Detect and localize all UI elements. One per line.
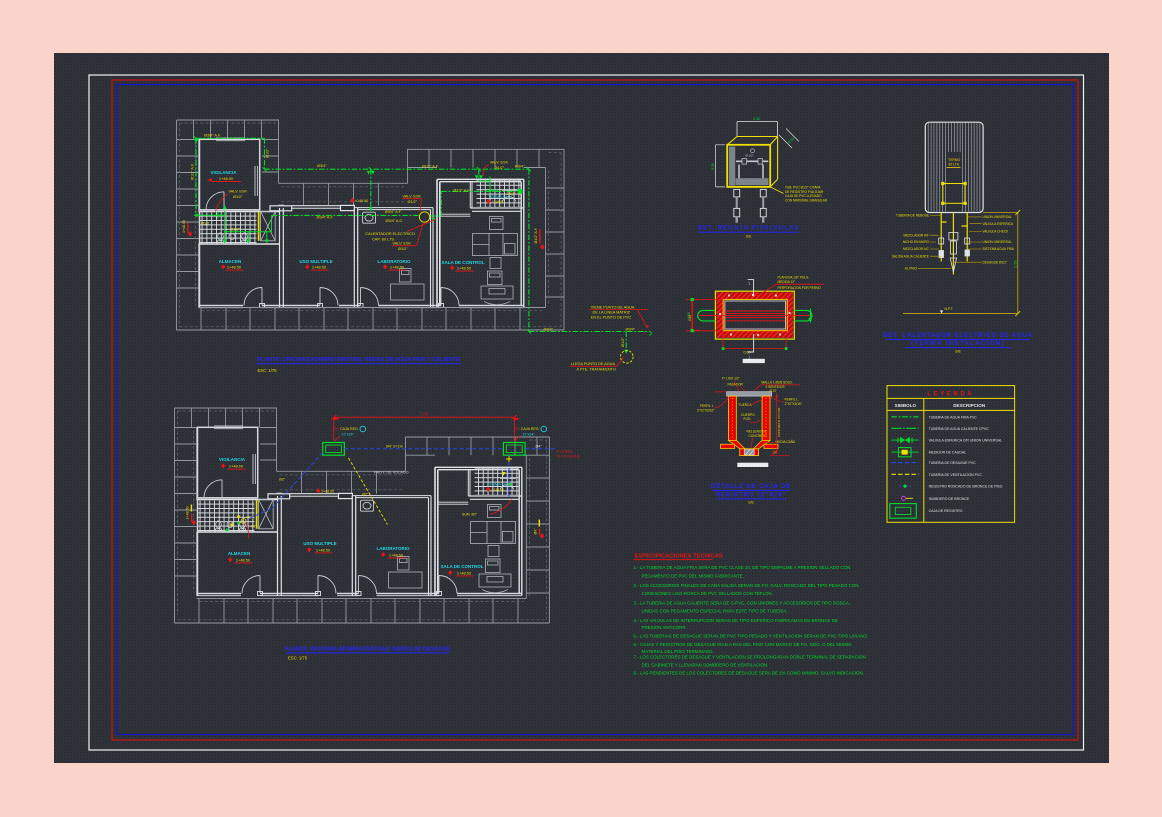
svg-text:VALV. ESF.: VALV. ESF.: [403, 195, 422, 199]
svg-text:1+48.50: 1+48.50: [186, 506, 190, 519]
svg-text:LEYENDA: LEYENDA: [927, 391, 974, 397]
svg-text:VIGILANCIA: VIGILANCIA: [210, 170, 237, 175]
svg-text:(TERMA INSTALACION): (TERMA INSTALACION): [911, 341, 1005, 347]
svg-text:MEDIDOR DE CAUDAL: MEDIDOR DE CAUDAL: [929, 451, 967, 455]
svg-text:DET. RECAJA P/VALVULAS: DET. RECAJA P/VALVULAS: [697, 226, 799, 232]
svg-text:Ø1/2" A.F.: Ø1/2" A.F.: [422, 165, 439, 169]
svg-text:PEGAMENTO DE PVC DEL MISMO FAB: PEGAMENTO DE PVC DEL MISMO FABRICANTE.: [642, 574, 744, 579]
svg-text:USO MULTIPLE: USO MULTIPLE: [303, 541, 336, 546]
svg-text:4.- LAS VALVULAS DE INTERRUPCI: 4.- LAS VALVULAS DE INTERRUPCION SERAN D…: [634, 618, 838, 623]
svg-text:Ø 1/2": Ø 1/2": [746, 153, 754, 157]
svg-text:Ø3/4": Ø3/4": [544, 328, 554, 332]
svg-text:PLANTA: OFICINAS ADMINISTRATIV: PLANTA: OFICINAS ADMINISTRATIVAS: REDES …: [285, 646, 451, 652]
svg-text:1+48.50: 1+48.50: [227, 265, 242, 270]
svg-text:Ø3/4" A.C.: Ø3/4" A.C.: [386, 219, 404, 223]
svg-text:Ø4": Ø4": [536, 444, 543, 448]
svg-text:DE DESAGUE: DE DESAGUE: [557, 455, 581, 459]
svg-text:PLANTA: OFICINAS ADMINISTRATIV: PLANTA: OFICINAS ADMINISTRATIVAS: REDES …: [257, 357, 460, 363]
svg-text:80 LTS.: 80 LTS.: [949, 163, 960, 167]
svg-text:MEDIDA 12": MEDIDA 12": [778, 280, 796, 284]
svg-text:VALV. ESF.: VALV. ESF.: [229, 190, 248, 194]
svg-text:VALVULA ESFERICA: VALVULA ESFERICA: [983, 222, 1014, 226]
svg-text:S/E: S/E: [748, 501, 754, 505]
svg-text:A PTE. TRATAMIENTO: A PTE. TRATAMIENTO: [577, 368, 616, 372]
svg-text:0.40: 0.40: [688, 315, 692, 321]
svg-text:2"X2"X3/16": 2"X2"X3/16": [697, 408, 714, 412]
svg-text:A LA RED: A LA RED: [557, 450, 573, 454]
svg-text:1+48.50: 1+48.50: [389, 553, 404, 558]
svg-text:UNION UNIVERSAL: UNION UNIVERSAL: [983, 240, 1012, 244]
svg-text:Ø4" S=1%: Ø4" S=1%: [386, 444, 404, 448]
svg-text:PRESION ANTICORR.: PRESION ANTICORR.: [642, 625, 687, 630]
svg-text:Ø1/2: Ø1/2: [201, 222, 209, 226]
svg-text:FIJO: FIJO: [744, 417, 751, 421]
svg-text:MEZCLADOR A/C: MEZCLADOR A/C: [903, 247, 930, 251]
svg-text:ESC: 1/75: ESC: 1/75: [288, 655, 308, 660]
svg-text:+148.50: +148.50: [492, 200, 504, 204]
svg-text:SALA DE CONTROL: SALA DE CONTROL: [440, 564, 483, 569]
svg-text:Ø2": Ø2": [279, 478, 286, 482]
svg-text:VALV. ESF.: VALV. ESF.: [490, 161, 509, 165]
svg-text:Ø1/2": Ø1/2": [231, 228, 241, 232]
svg-text:1+48.50: 1+48.50: [390, 265, 405, 270]
svg-text:TUERCA: TUERCA: [739, 403, 753, 407]
svg-text:2.- LOS ACCESORIOS FINALES DE: 2.- LOS ACCESORIOS FINALES DE CADA SALID…: [634, 583, 859, 588]
svg-text:CAJA DE REGISTRO: CAJA DE REGISTRO: [929, 509, 963, 513]
svg-text:UNION UNIVERSAL: UNION UNIVERSAL: [983, 215, 1012, 219]
svg-text:DETALLE DE CAJA DE: DETALLE DE CAJA DE: [711, 484, 791, 490]
svg-text:Ø4": Ø4": [534, 528, 538, 535]
svg-text:DET. CALENTADOR ELECTRICO DE A: DET. CALENTADOR ELECTRICO DE AGUA: [883, 333, 1033, 339]
svg-text:SALA DE CONTROL: SALA DE CONTROL: [441, 260, 484, 265]
svg-text:AL PISO: AL PISO: [905, 267, 918, 271]
svg-text:MEZCLADOR A/F: MEZCLADOR A/F: [903, 233, 929, 237]
svg-text:Ø3/4": Ø3/4": [626, 328, 636, 332]
svg-text:CAJA REG.: CAJA REG.: [340, 427, 359, 431]
svg-text:1+48.50: 1+48.50: [312, 265, 327, 270]
svg-text:VALVULA CHECK: VALVULA CHECK: [983, 230, 1010, 234]
svg-text:12"x24": 12"x24": [522, 433, 535, 437]
svg-text:CON MATERIAL GRANULAR: CON MATERIAL GRANULAR: [785, 198, 828, 202]
svg-text:REGISTRO ROSCADO DE BRONCE DE: REGISTRO ROSCADO DE BRONCE DE PISO: [929, 485, 1003, 489]
svg-text:1+48.50: 1+48.50: [236, 558, 251, 563]
svg-text:S/E: S/E: [955, 349, 961, 353]
svg-text:Ø1/2" A.F.: Ø1/2" A.F.: [534, 227, 538, 243]
svg-text:TERMA ELEC.: TERMA ELEC.: [488, 194, 514, 199]
svg-text:5.- LAS TUBERIAS DE DESAGUE SE: 5.- LAS TUBERIAS DE DESAGUE SERAN DE PVC…: [634, 633, 869, 638]
svg-text:EN EL PUNTO DE PVC: EN EL PUNTO DE PVC: [591, 315, 632, 319]
svg-text:1+48.50: 1+48.50: [316, 548, 331, 553]
svg-text:CAJA REG.: CAJA REG.: [521, 427, 540, 431]
svg-text:NICHO EN MURO: NICHO EN MURO: [903, 240, 930, 244]
svg-text:1+48.50: 1+48.50: [182, 220, 186, 233]
svg-text:1+48.50: 1+48.50: [457, 266, 472, 271]
svg-text:SUMIDERO DE BRONCE: SUMIDERO DE BRONCE: [929, 497, 970, 501]
svg-text:ESPECIFICACIONES TECNICAS: ESPECIFICACIONES TECNICAS: [635, 554, 723, 560]
svg-text:1+48.50: 1+48.50: [457, 571, 472, 576]
svg-text:1+48.50: 1+48.50: [321, 489, 334, 493]
svg-text:CR: CR: [334, 427, 339, 431]
svg-text:6.- CAJAS Y REGISTROS DE DESAG: 6.- CAJAS Y REGISTROS DE DESAGUE IRAN A …: [634, 642, 853, 647]
svg-text:TERMO: TERMO: [948, 158, 961, 162]
svg-text:1.- LA TUBERIA DE AGUA FRIA SE: 1.- LA TUBERIA DE AGUA FRIA SERA DE PVC …: [634, 565, 851, 570]
svg-text:VIGILANCIA: VIGILANCIA: [219, 457, 246, 462]
svg-text:CALENTADOR ELECTRICO: CALENTADOR ELECTRICO: [365, 231, 415, 236]
svg-text:Ø3/4": Ø3/4": [515, 164, 525, 168]
svg-text:0.30: 0.30: [753, 117, 760, 121]
svg-text:SISTEMA AGUA FRIA: SISTEMA AGUA FRIA: [983, 247, 1015, 251]
svg-text:VALV. ESF.: VALV. ESF.: [393, 242, 412, 246]
svg-text:ALMACEN: ALMACEN: [219, 259, 242, 264]
svg-text:Ø1/2" A.F.: Ø1/2" A.F.: [191, 163, 195, 180]
svg-text:TUBERIA DE AGUA CALIENTE CPVC: TUBERIA DE AGUA CALIENTE CPVC: [929, 427, 990, 431]
svg-text:CR: CR: [515, 427, 520, 431]
svg-text:DE LA LINEA MATRIZ: DE LA LINEA MATRIZ: [593, 310, 631, 314]
svg-text:CONEXIONES LISO-ROSCA DE PVC S: CONEXIONES LISO-ROSCA DE PVC SELLADOS CO…: [642, 591, 773, 596]
svg-text:SIMBOLO: SIMBOLO: [895, 403, 917, 408]
svg-text:SALIDA AGUA CALIENTE: SALIDA AGUA CALIENTE: [892, 254, 929, 258]
svg-text:Ø.07: Ø.07: [770, 389, 777, 393]
svg-text:Ø1/2": Ø1/2": [266, 148, 270, 158]
svg-text:CONCRETO: CONCRETO: [749, 434, 768, 438]
svg-text:USO MULTIPLE: USO MULTIPLE: [299, 259, 332, 264]
svg-text:PROY. DE VOLADO: PROY. DE VOLADO: [374, 471, 409, 475]
svg-text:Ø2": Ø2": [362, 493, 369, 497]
svg-text:+148.50: +148.50: [492, 488, 504, 492]
svg-text:LABORATORIO: LABORATORIO: [376, 546, 410, 551]
svg-text:Ø3/4": Ø3/4": [317, 164, 327, 168]
svg-text:Ø1/2" A.F.: Ø1/2" A.F.: [453, 189, 470, 193]
svg-text:REGISTRO 12"X24": REGISTRO 12"X24": [716, 492, 786, 498]
svg-text:DESAGUE Ø1/2": DESAGUE Ø1/2": [983, 260, 1008, 264]
svg-text:SUM. Ø2": SUM. Ø2": [462, 513, 478, 517]
svg-text:Ø2": Ø2": [251, 525, 256, 529]
svg-text:TUBERIA DE REBOSE: TUBERIA DE REBOSE: [896, 214, 929, 218]
svg-text:1+48.00: 1+48.00: [229, 464, 244, 469]
svg-text:Ø1/2": Ø1/2": [621, 337, 625, 347]
svg-text:Ø3/4" A.F.: Ø3/4" A.F.: [317, 216, 334, 220]
svg-text:DESCRIPCION: DESCRIPCION: [953, 403, 986, 408]
svg-text:CONCRETO F'C=140: CONCRETO F'C=140: [777, 407, 781, 437]
svg-text:Ø2": Ø2": [247, 516, 252, 520]
svg-text:Ø1/2": Ø1/2": [495, 166, 505, 170]
svg-text:1+48.00: 1+48.00: [219, 176, 234, 181]
svg-text:VALVULA ESFERICA C/R UNION UNI: VALVULA ESFERICA C/R UNION UNIVERSAL: [929, 439, 1002, 443]
svg-text:MEDIA CAÑA: MEDIA CAÑA: [776, 439, 797, 444]
svg-text:2"X2"X3/16": 2"X2"X3/16": [785, 402, 802, 406]
svg-text:Ø3/4" A.F.: Ø3/4" A.F.: [204, 134, 221, 138]
svg-text:TUBERIA DE DESAGUE PVC: TUBERIA DE DESAGUE PVC: [929, 461, 977, 465]
svg-text:S/E: S/E: [746, 234, 752, 238]
svg-text:ESC: 1/75: ESC: 1/75: [258, 368, 278, 373]
svg-text:+148.50: +148.50: [355, 199, 368, 203]
svg-text:VIENE PUNTO DE AGUA: VIENE PUNTO DE AGUA: [591, 305, 635, 309]
svg-text:PERFORACION POR PERNO: PERFORACION POR PERNO: [778, 286, 822, 290]
svg-text:CAP. 80 LTS.: CAP. 80 LTS.: [372, 236, 395, 241]
svg-text:3.- LA TUBERIA DE AGUA CALIENT: 3.- LA TUBERIA DE AGUA CALIENTE SERA DE …: [634, 601, 850, 606]
svg-text:12"x24": 12"x24": [342, 433, 355, 437]
svg-text:7.00: 7.00: [420, 411, 429, 416]
svg-text:LABORATORIO: LABORATORIO: [377, 259, 411, 264]
svg-text:8.- LAS PENDIENTES DE LOS COLE: 8.- LAS PENDIENTES DE LOS COLECTORES DE …: [634, 671, 864, 676]
svg-text:0.30: 0.30: [711, 163, 715, 170]
svg-text:LLEGA PUNTO DE AGUA: LLEGA PUNTO DE AGUA: [571, 362, 616, 366]
svg-text:Fº LISO 1/2": Fº LISO 1/2": [722, 377, 740, 381]
svg-text:ALMACEN: ALMACEN: [228, 551, 251, 556]
svg-text:TUBERIA DE VENTILACION PVC: TUBERIA DE VENTILACION PVC: [929, 473, 983, 477]
svg-text:Ø1/2": Ø1/2": [408, 200, 418, 204]
svg-text:TUBERIA DE AGUA FRIA PVC: TUBERIA DE AGUA FRIA PVC: [929, 415, 978, 419]
svg-text:UNIDAS CON PEGAMENTO ESPECIAL: UNIDAS CON PEGAMENTO ESPECIAL PARA ESTE …: [642, 608, 788, 613]
svg-text:7.- LOS COLECTORES DE DESAGUE: 7.- LOS COLECTORES DE DESAGUE Y VENTILAC…: [634, 654, 866, 659]
svg-text:Ø3/4" A.F.: Ø3/4" A.F.: [385, 210, 402, 214]
svg-text:Ø1/2": Ø1/2": [233, 195, 243, 199]
svg-text:N.P.T.: N.P.T.: [945, 307, 954, 311]
svg-text:2.50: 2.50: [1012, 259, 1017, 268]
svg-text:Ø1/2": Ø1/2": [398, 247, 408, 251]
svg-text:DEL GABINETE Y LLEVARAN SOMBRE: DEL GABINETE Y LLEVARAN SOMBRERO DE VENT…: [642, 662, 769, 667]
